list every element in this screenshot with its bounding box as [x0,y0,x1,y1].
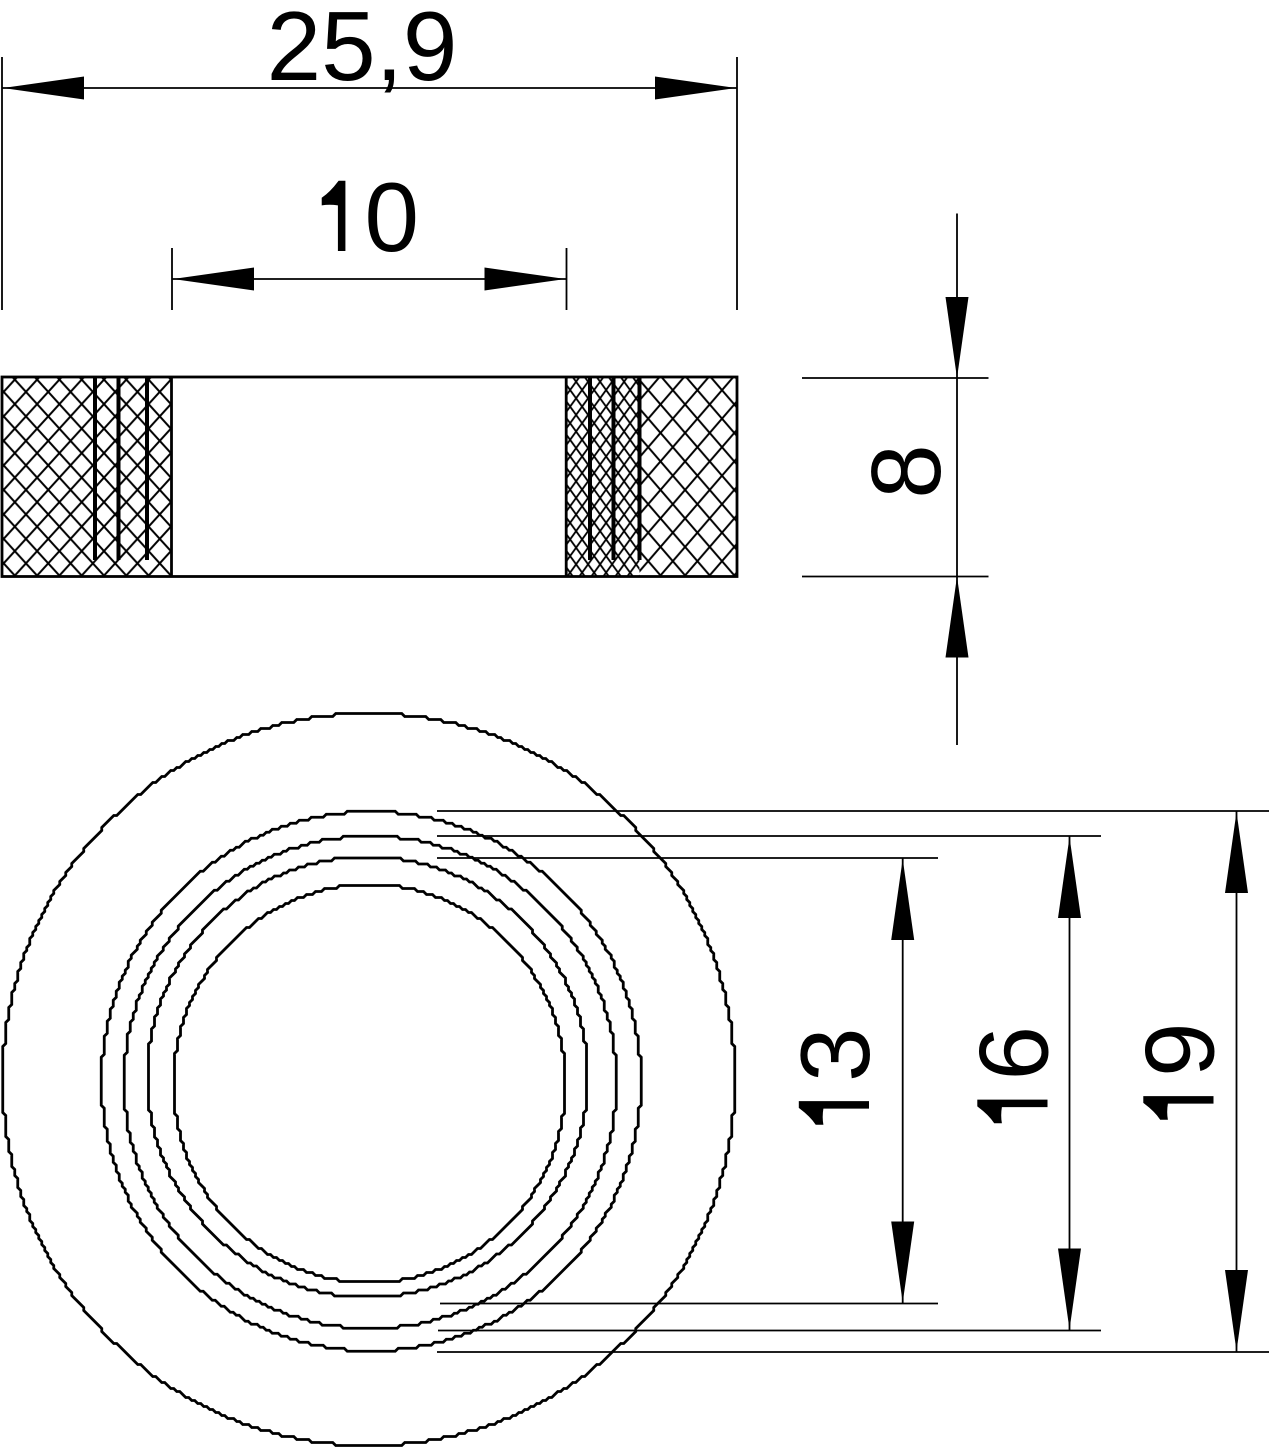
svg-text:25,9: 25,9 [267,0,458,101]
svg-text:8: 8 [851,444,961,499]
svg-text:9: 9 [1125,1022,1235,1077]
svg-text:3: 3 [780,1027,890,1082]
svg-text:6: 6 [959,1026,1069,1081]
svg-text:0: 0 [365,162,420,272]
